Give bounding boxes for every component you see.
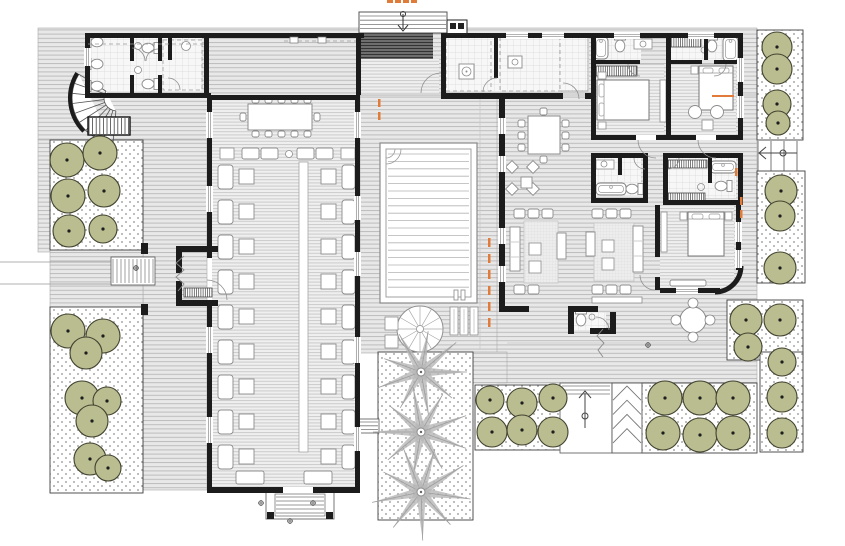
chair xyxy=(514,285,525,294)
tread-lines xyxy=(758,141,797,171)
chair xyxy=(314,113,320,121)
side-table xyxy=(239,169,254,184)
shape xyxy=(725,212,732,220)
wall xyxy=(591,135,743,140)
shape xyxy=(602,240,614,252)
round-table xyxy=(680,307,706,333)
chair xyxy=(265,131,272,137)
sofa xyxy=(586,232,595,256)
region xyxy=(702,120,713,130)
shape xyxy=(458,23,464,29)
lounge-seat xyxy=(218,445,233,469)
straight-stair xyxy=(88,117,130,135)
tree-symbol xyxy=(477,417,507,447)
shape xyxy=(660,80,666,122)
chair xyxy=(670,280,706,286)
wall xyxy=(655,277,660,290)
tree-symbol xyxy=(538,417,568,447)
wall xyxy=(130,33,134,61)
chair xyxy=(562,144,569,151)
window xyxy=(206,112,213,138)
accent-dash xyxy=(488,286,491,295)
window xyxy=(688,32,714,39)
tree-symbol xyxy=(88,175,120,207)
region xyxy=(691,66,698,74)
tree-symbol xyxy=(507,388,537,418)
window xyxy=(498,118,506,134)
dining-table xyxy=(528,116,560,154)
window xyxy=(354,427,361,451)
accent-dash xyxy=(740,197,743,205)
window xyxy=(354,196,361,220)
window xyxy=(206,186,213,212)
watermark-fragment xyxy=(387,0,417,3)
wall xyxy=(663,153,743,158)
wall xyxy=(441,38,446,95)
region xyxy=(361,33,433,59)
chair xyxy=(518,132,525,139)
chair xyxy=(528,209,539,218)
window xyxy=(614,32,640,39)
lounge-seat xyxy=(342,235,355,259)
wall xyxy=(708,155,712,183)
chair xyxy=(278,131,285,137)
tree-symbol xyxy=(53,215,85,247)
region xyxy=(521,177,532,188)
tree-symbol xyxy=(765,201,795,231)
chair xyxy=(252,131,259,137)
window xyxy=(354,112,361,138)
bathtub xyxy=(596,183,626,195)
tree-symbol xyxy=(646,416,680,450)
chair xyxy=(297,148,314,159)
toilet xyxy=(142,79,159,90)
chair xyxy=(291,131,298,137)
chair xyxy=(236,471,264,484)
side-table xyxy=(321,449,336,464)
watermark-fragment xyxy=(395,0,401,3)
wall xyxy=(593,60,640,64)
side-table xyxy=(321,414,336,429)
chair xyxy=(688,298,698,308)
chair xyxy=(620,285,631,294)
closet-shelves xyxy=(667,193,705,201)
shape xyxy=(529,261,541,273)
long-table xyxy=(248,104,312,130)
basin xyxy=(135,67,142,74)
chair xyxy=(562,132,569,139)
window xyxy=(737,58,744,82)
watermark-fragment xyxy=(387,0,393,3)
shape xyxy=(283,487,313,493)
chair xyxy=(304,131,311,137)
shape xyxy=(529,243,541,255)
side-table xyxy=(321,274,336,289)
chair xyxy=(240,113,246,121)
tree-symbol xyxy=(648,381,682,415)
tree-symbol xyxy=(764,252,796,284)
tree-symbol xyxy=(767,382,797,412)
shape xyxy=(290,37,298,43)
shape xyxy=(220,148,234,159)
pool-basin xyxy=(386,149,471,297)
chairs xyxy=(670,280,706,286)
window xyxy=(84,48,91,66)
wall xyxy=(356,38,361,95)
side-table xyxy=(239,239,254,254)
bed xyxy=(688,212,724,256)
chair xyxy=(316,148,333,159)
wall xyxy=(618,155,622,175)
region xyxy=(38,140,50,252)
window xyxy=(737,96,744,118)
window xyxy=(206,327,213,353)
closet-shelves xyxy=(667,160,707,168)
side-table xyxy=(321,344,336,359)
side-table xyxy=(239,204,254,219)
region xyxy=(143,140,207,490)
wall xyxy=(585,93,593,99)
lounge-seat xyxy=(218,375,233,399)
shape xyxy=(636,135,656,140)
accent-dash xyxy=(740,210,743,218)
side-table xyxy=(239,414,254,429)
chair xyxy=(711,106,724,119)
circle xyxy=(286,151,293,158)
tree-symbol xyxy=(76,405,108,437)
tree-symbol xyxy=(95,455,121,481)
watermark-fragment xyxy=(403,0,409,3)
parasol xyxy=(397,306,443,352)
region xyxy=(361,59,439,93)
chair xyxy=(688,332,698,342)
side-table xyxy=(321,169,336,184)
wall xyxy=(85,93,211,98)
tree-symbol xyxy=(716,381,750,415)
chair xyxy=(689,106,702,119)
chair xyxy=(528,285,539,294)
wall xyxy=(176,281,182,306)
bed xyxy=(699,66,733,110)
shape xyxy=(598,72,606,79)
tree-symbol xyxy=(539,384,567,412)
wall xyxy=(204,33,209,98)
chair xyxy=(518,144,525,151)
shape xyxy=(385,317,398,330)
vanity xyxy=(634,39,652,49)
sofa xyxy=(510,227,520,271)
chair xyxy=(514,209,525,218)
lounge-seat xyxy=(342,200,355,224)
chair xyxy=(620,209,631,218)
wall xyxy=(130,75,134,95)
window xyxy=(498,156,506,172)
side-table xyxy=(239,309,254,324)
window xyxy=(354,337,361,363)
lounge-seat xyxy=(218,165,233,189)
wall xyxy=(666,33,671,140)
shape xyxy=(385,335,398,348)
side-table xyxy=(321,239,336,254)
bathtub xyxy=(710,161,736,173)
console xyxy=(592,297,642,303)
appliance xyxy=(508,56,522,68)
wall xyxy=(158,75,162,95)
bed xyxy=(597,80,649,120)
accent-dash xyxy=(735,168,738,176)
washer xyxy=(459,64,474,79)
window xyxy=(735,250,742,268)
lounge-seat xyxy=(342,340,355,364)
shape xyxy=(450,23,456,29)
chair xyxy=(592,285,603,294)
window xyxy=(506,32,528,39)
tree-symbol xyxy=(762,54,792,84)
chair xyxy=(518,120,525,127)
doormat xyxy=(184,288,212,297)
shape xyxy=(602,258,614,270)
utility-marker xyxy=(258,500,264,506)
accent-dash xyxy=(712,95,734,97)
side-table xyxy=(321,379,336,394)
tree-symbol xyxy=(766,111,790,135)
wall xyxy=(499,306,529,312)
wall xyxy=(494,33,498,78)
window xyxy=(498,228,506,244)
lounge-seat xyxy=(218,235,233,259)
region xyxy=(473,352,507,383)
tree-symbol xyxy=(768,348,796,376)
toilet xyxy=(626,184,643,195)
tree-symbol xyxy=(50,143,84,177)
window xyxy=(354,252,361,276)
wall xyxy=(610,312,616,334)
tree-symbol xyxy=(83,136,117,170)
accent-dash xyxy=(488,302,491,311)
wall xyxy=(643,153,648,203)
side-table xyxy=(239,449,254,464)
wall xyxy=(176,246,182,273)
tree-symbol xyxy=(716,416,750,450)
shape xyxy=(598,122,606,129)
lounge-seat xyxy=(342,375,355,399)
wall xyxy=(141,243,148,254)
south-walkway xyxy=(560,383,612,453)
pool-ladder xyxy=(454,290,458,300)
accent-dash xyxy=(488,238,491,247)
accent-dash xyxy=(488,318,491,327)
basin xyxy=(182,42,191,51)
wall xyxy=(663,200,743,205)
side-table xyxy=(321,204,336,219)
chair xyxy=(705,315,715,325)
lounge-seat xyxy=(218,200,233,224)
chair xyxy=(592,209,603,218)
sofa xyxy=(633,226,643,272)
chair xyxy=(671,315,681,325)
wall xyxy=(568,306,574,334)
chair xyxy=(606,285,617,294)
swimming-pool xyxy=(380,143,477,303)
tree-symbol xyxy=(734,333,762,361)
runner xyxy=(299,162,308,452)
wall xyxy=(666,60,702,64)
wall xyxy=(663,153,668,205)
shape xyxy=(318,37,326,43)
pool-ladder xyxy=(461,290,465,300)
region xyxy=(326,512,333,519)
wall xyxy=(209,95,357,100)
side-table xyxy=(239,344,254,359)
tree-symbol xyxy=(767,418,797,448)
chair xyxy=(606,209,617,218)
watermark-fragment xyxy=(411,0,417,3)
accent-dash xyxy=(378,99,381,107)
bathtub xyxy=(723,37,738,61)
lounge-seat xyxy=(342,165,355,189)
chair xyxy=(261,148,278,159)
wall xyxy=(141,304,148,315)
tree-symbol xyxy=(507,415,537,445)
garden-ramp xyxy=(612,383,642,453)
wall xyxy=(176,246,218,252)
wall xyxy=(591,198,645,203)
window xyxy=(735,222,742,242)
wall xyxy=(655,205,660,257)
region xyxy=(267,512,274,519)
floor-plan-document xyxy=(0,0,845,546)
shape xyxy=(341,148,355,159)
chair xyxy=(242,148,259,159)
shape xyxy=(696,135,716,140)
lounge-seat xyxy=(218,305,233,329)
window xyxy=(542,32,564,39)
accent-dash xyxy=(378,112,381,120)
wall xyxy=(591,153,596,203)
tree-symbol xyxy=(51,179,85,213)
wall xyxy=(738,33,743,140)
chair xyxy=(304,471,332,484)
lounge-seat xyxy=(342,410,355,434)
tree-symbol xyxy=(476,386,504,414)
window xyxy=(206,417,213,443)
window xyxy=(498,266,506,282)
floor-plan-canvas xyxy=(0,0,845,546)
bathtub xyxy=(594,37,608,59)
tree-symbol xyxy=(683,381,717,415)
lounge-seat xyxy=(342,270,355,294)
tree-symbol xyxy=(89,215,117,243)
lounge-seat xyxy=(342,305,355,329)
wall xyxy=(591,38,596,140)
sofa xyxy=(557,233,566,259)
wall xyxy=(158,33,162,61)
tree-symbol xyxy=(70,337,102,369)
side-table xyxy=(239,274,254,289)
accent-dash xyxy=(488,270,491,279)
accent-dash xyxy=(488,254,491,263)
tree-symbol xyxy=(683,418,717,452)
side-table xyxy=(239,379,254,394)
side-table xyxy=(321,309,336,324)
chair xyxy=(540,156,547,163)
tree-symbol xyxy=(764,304,796,336)
shape xyxy=(661,212,667,252)
chair xyxy=(562,120,569,127)
shape xyxy=(680,212,687,220)
lounge-seat xyxy=(218,270,233,294)
wall xyxy=(168,33,172,60)
chair xyxy=(542,209,553,218)
wall xyxy=(176,300,218,306)
lounge-seat xyxy=(218,410,233,434)
window xyxy=(676,287,698,294)
lounge-seat xyxy=(218,340,233,364)
tree-symbol xyxy=(730,304,762,336)
lounge-seat xyxy=(342,445,355,469)
toilet xyxy=(715,181,732,192)
chair xyxy=(540,108,547,115)
